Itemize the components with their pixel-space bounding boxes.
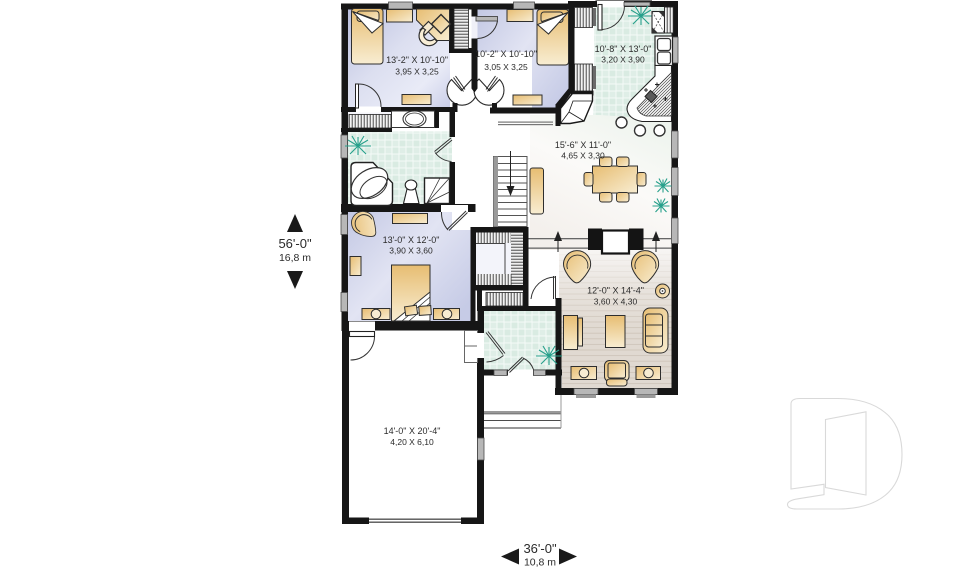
svg-text:13'-2" X 10'-10": 13'-2" X 10'-10" bbox=[386, 55, 448, 65]
svg-text:3,20 X 3,90: 3,20 X 3,90 bbox=[601, 55, 645, 65]
svg-text:13'-0" X 12'-0": 13'-0" X 12'-0" bbox=[383, 235, 440, 245]
svg-text:36'-0": 36'-0" bbox=[523, 541, 557, 556]
svg-text:12'-0" X 14'-4": 12'-0" X 14'-4" bbox=[587, 286, 644, 296]
svg-text:10'-8" X 13'-0": 10'-8" X 13'-0" bbox=[595, 44, 652, 54]
svg-text:16,8 m: 16,8 m bbox=[279, 252, 311, 264]
svg-text:15'-6" X 11'-0": 15'-6" X 11'-0" bbox=[555, 140, 611, 150]
svg-text:3,05 X 3,25: 3,05 X 3,25 bbox=[484, 62, 528, 72]
svg-text:56'-0": 56'-0" bbox=[278, 236, 312, 251]
svg-text:3,95 X 3,25: 3,95 X 3,25 bbox=[395, 67, 439, 77]
svg-text:4,20 X 6,10: 4,20 X 6,10 bbox=[390, 437, 434, 447]
svg-text:10'-2" X 10'-10": 10'-2" X 10'-10" bbox=[475, 49, 537, 59]
svg-text:14'-0" X 20'-4": 14'-0" X 20'-4" bbox=[384, 426, 441, 436]
svg-text:4,65 X 3,30: 4,65 X 3,30 bbox=[561, 151, 605, 161]
svg-text:3,60 X 4,30: 3,60 X 4,30 bbox=[594, 297, 638, 307]
svg-text:3,90 X 3,60: 3,90 X 3,60 bbox=[389, 246, 433, 256]
svg-text:10,8 m: 10,8 m bbox=[524, 557, 556, 569]
